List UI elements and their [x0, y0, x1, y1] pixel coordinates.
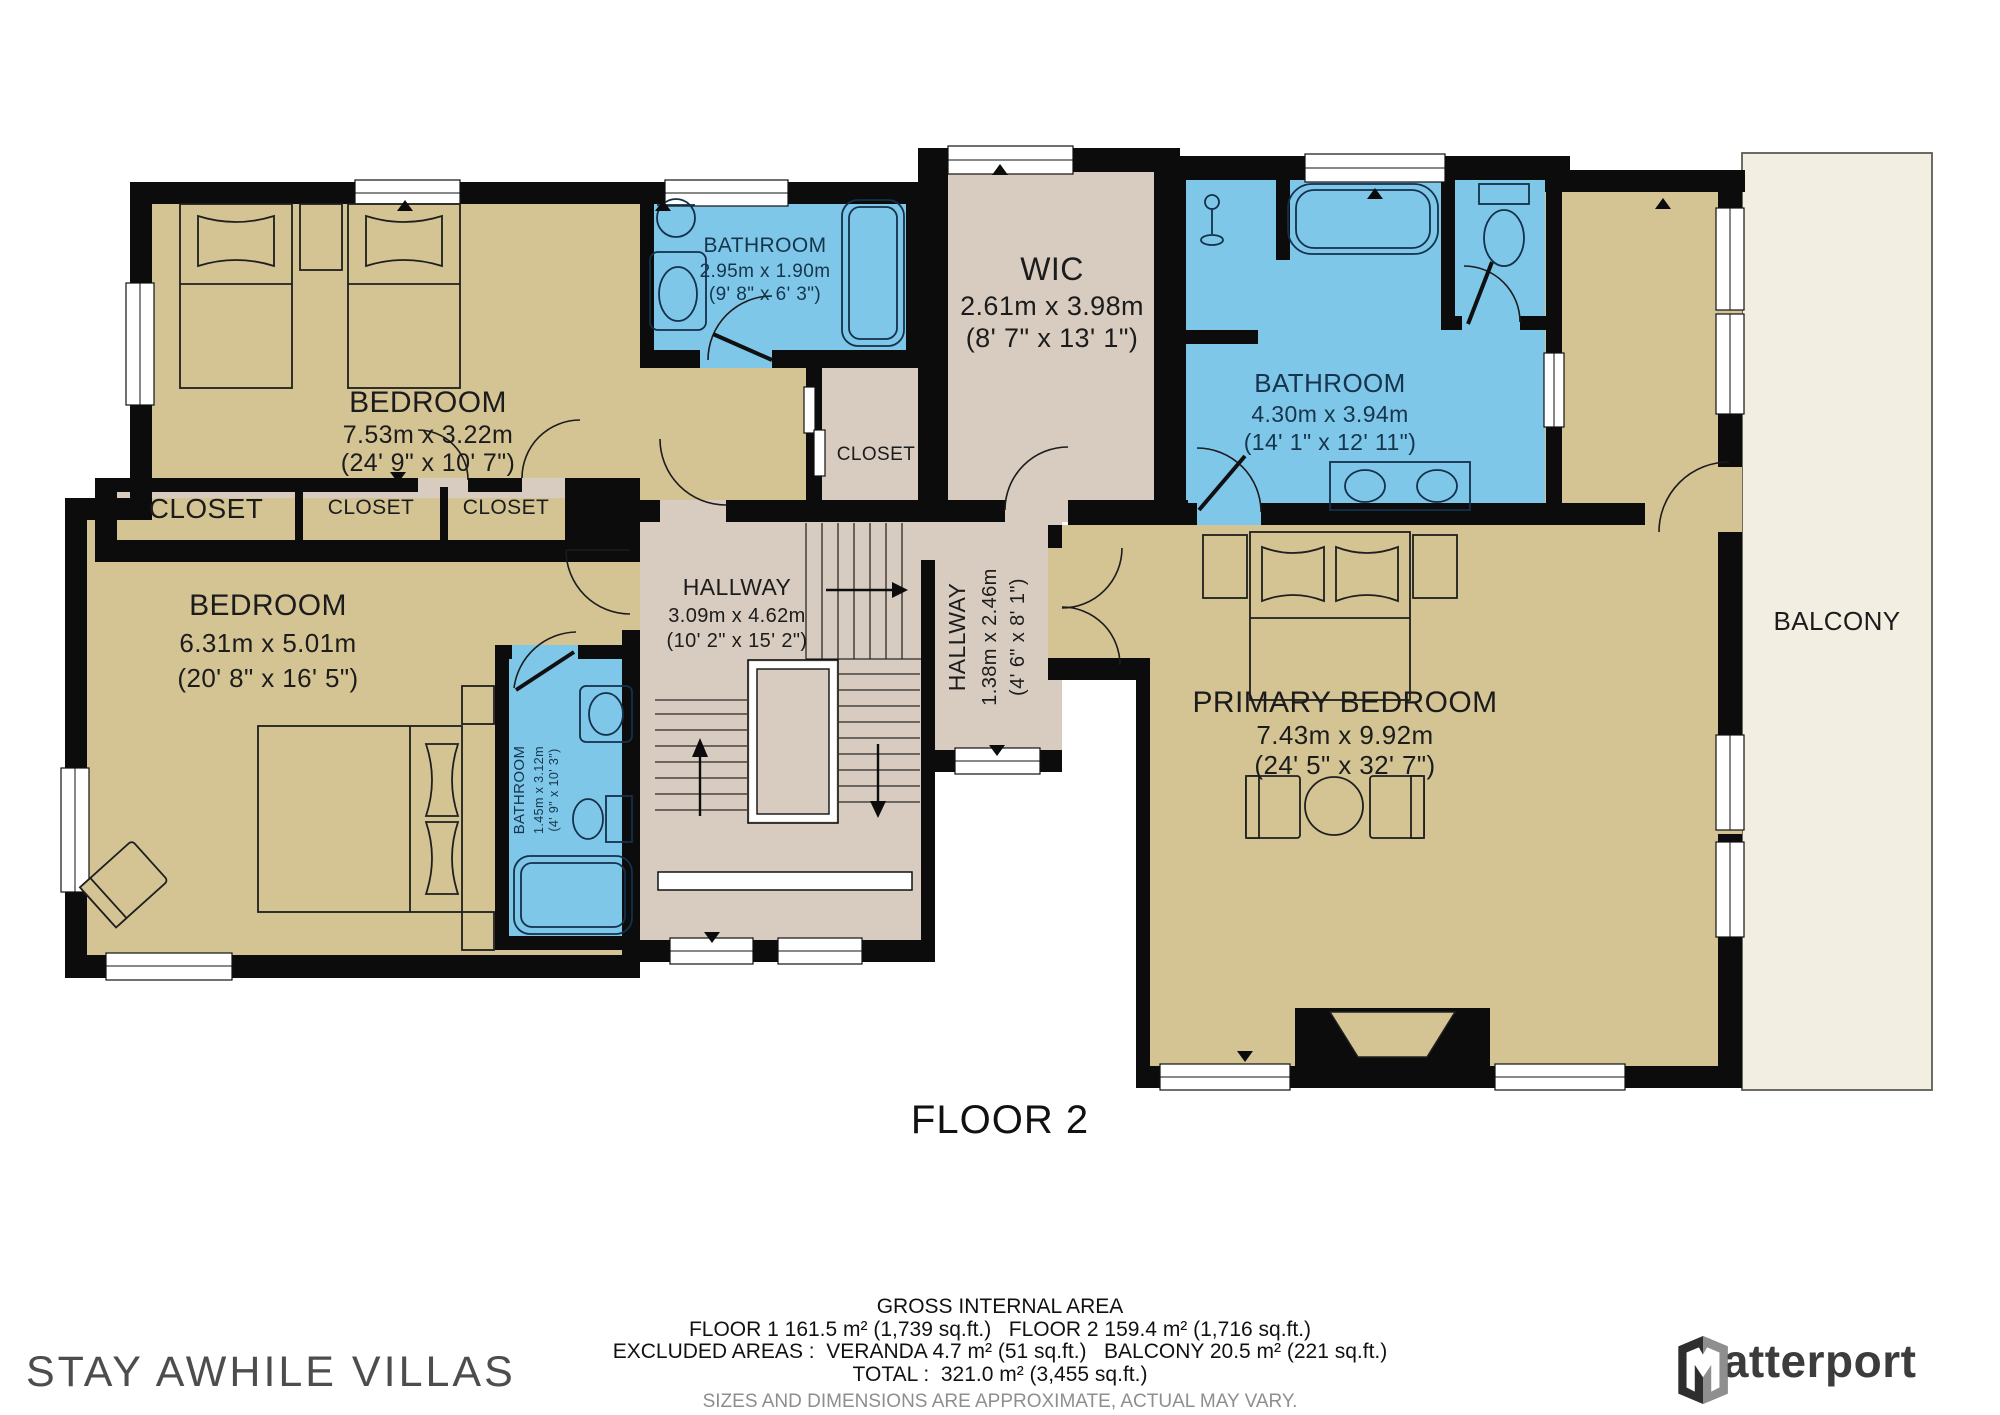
label-bathroom-top-name: BATHROOM [704, 234, 827, 257]
label-hallway-small-imperial: (4' 6" x 8' 1") [1007, 578, 1029, 696]
label-bedroom-top-imperial: (24' 9" x 10' 7") [341, 449, 515, 477]
room-primary-strip [1545, 170, 1742, 535]
label-wic-imperial: (8' 7" x 13' 1") [966, 323, 1138, 353]
label-bedroom-top-name: BEDROOM [349, 386, 507, 419]
gross-internal-area-title: GROSS INTERNAL AREA [0, 1296, 2000, 1319]
label-bedroom-left-name: BEDROOM [189, 589, 347, 622]
sliding-door [804, 387, 815, 433]
nightstand [1413, 535, 1457, 598]
nightstand [1203, 535, 1247, 598]
label-closet-1: CLOSET [149, 493, 263, 524]
matterport-icon [1672, 1334, 1734, 1406]
label-hallway-small-name: HALLWAY [944, 583, 970, 691]
label-hallway-main-metric: 3.09m x 4.62m [668, 605, 806, 627]
nightstand [462, 912, 494, 950]
floor-title: FLOOR 2 [0, 1098, 2000, 1143]
label-bathroom-small-imperial: (4' 9" x 10' 3") [547, 748, 561, 831]
label-primary-bedroom-name: PRIMARY BEDROOM [1193, 686, 1498, 719]
pillow [198, 216, 274, 266]
label-bathroom-main-imperial: (14' 1" x 12' 11") [1244, 429, 1417, 455]
label-bathroom-top-imperial: (9' 8" x 6' 3") [709, 284, 821, 305]
label-closet-2: CLOSET [328, 496, 414, 519]
floorplan-page: BEDROOM 7.53m x 3.22m (24' 9" x 10' 7") … [0, 0, 2000, 1415]
company-name: STAY AWHILE VILLAS [26, 1348, 516, 1397]
label-primary-bedroom-imperial: (24' 5" x 32' 7") [1254, 750, 1435, 780]
label-bathroom-main-metric: 4.30m x 3.94m [1251, 401, 1408, 427]
label-bathroom-small-metric: 1.45m x 3.12m [532, 746, 546, 834]
floorplan-drawing: BEDROOM 7.53m x 3.22m (24' 9" x 10' 7") … [0, 0, 2000, 1250]
label-bathroom-main-name: BATHROOM [1254, 368, 1406, 398]
label-bathroom-small-name: BATHROOM [511, 746, 528, 835]
nightstand [300, 204, 342, 270]
hallway-counter [658, 872, 912, 890]
label-hallway-main-name: HALLWAY [683, 574, 791, 600]
label-bedroom-left-imperial: (20' 8" x 16' 5") [177, 663, 358, 693]
label-wic-metric: 2.61m x 3.98m [960, 291, 1144, 321]
pillow [366, 216, 442, 266]
label-balcony: BALCONY [1773, 606, 1900, 636]
sliding-door [814, 430, 825, 476]
label-hallway-small-metric: 1.38m x 2.46m [979, 568, 1001, 706]
label-bedroom-left-metric: 6.31m x 5.01m [179, 628, 356, 658]
label-hallway-main-imperial: (10' 2" x 15' 2") [667, 630, 808, 652]
label-primary-bedroom-metric: 7.43m x 9.92m [1256, 720, 1433, 750]
pillow [1262, 547, 1324, 601]
label-wic-name: WIC [1020, 251, 1083, 287]
label-closet-3: CLOSET [463, 496, 549, 519]
stairwell-void [748, 660, 838, 823]
label-bathroom-top-metric: 2.95m x 1.90m [700, 261, 831, 282]
label-bedroom-top-metric: 7.53m x 3.22m [343, 421, 514, 449]
nightstand [462, 686, 494, 724]
label-closet-top: CLOSET [837, 444, 915, 465]
matterport-logo: Matterport [1672, 1334, 1916, 1388]
pillow [1336, 547, 1398, 601]
